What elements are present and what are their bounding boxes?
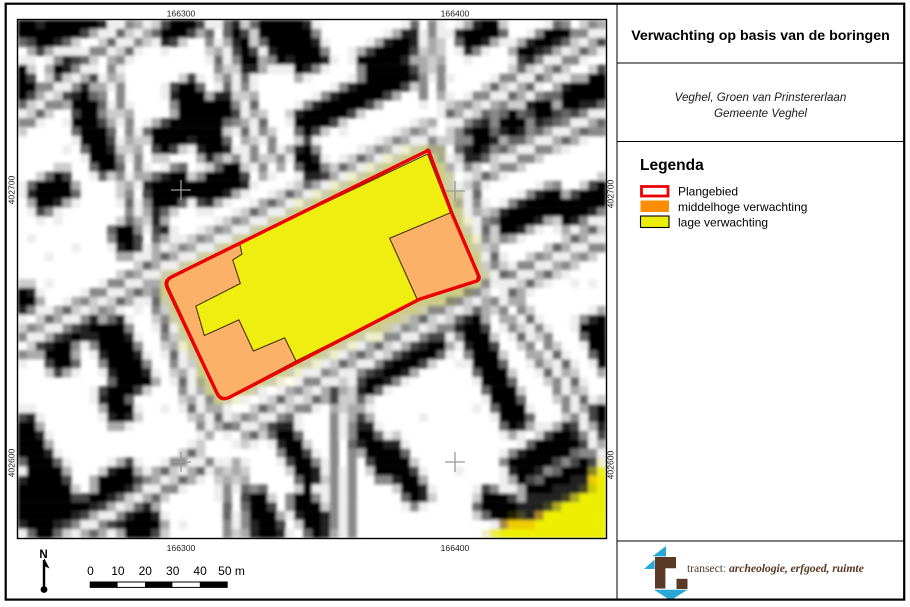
- svg-text:40: 40: [193, 564, 207, 578]
- svg-text:Legenda: Legenda: [640, 157, 704, 174]
- svg-text:166400: 166400: [441, 9, 470, 19]
- svg-text:Verwachting op basis van de bo: Verwachting op basis van de boringen: [631, 28, 890, 44]
- svg-text:10: 10: [111, 564, 125, 578]
- svg-text:402600: 402600: [606, 450, 616, 479]
- svg-text:0: 0: [87, 564, 94, 578]
- svg-text:N: N: [39, 549, 47, 561]
- svg-text:50 m: 50 m: [218, 564, 245, 578]
- svg-text:402700: 402700: [7, 175, 17, 204]
- svg-text:402600: 402600: [7, 448, 17, 477]
- svg-text:Veghel, Groen van Prinstererla: Veghel, Groen van Prinstererlaan: [675, 91, 847, 104]
- svg-text:166400: 166400: [441, 543, 470, 553]
- svg-text:20: 20: [139, 564, 153, 578]
- svg-text:transect: archeologie, erfgoed: transect: archeologie, erfgoed, ruimte: [687, 561, 864, 575]
- svg-text:lage verwachting: lage verwachting: [678, 216, 768, 230]
- svg-text:Gemeente Veghel: Gemeente Veghel: [714, 107, 807, 120]
- svg-text:166300: 166300: [167, 543, 196, 553]
- svg-text:30: 30: [166, 564, 180, 578]
- svg-text:Plangebied: Plangebied: [678, 185, 738, 199]
- svg-text:middelhoge verwachting: middelhoge verwachting: [678, 200, 807, 214]
- svg-text:402700: 402700: [606, 179, 616, 208]
- svg-text:166300: 166300: [167, 9, 196, 19]
